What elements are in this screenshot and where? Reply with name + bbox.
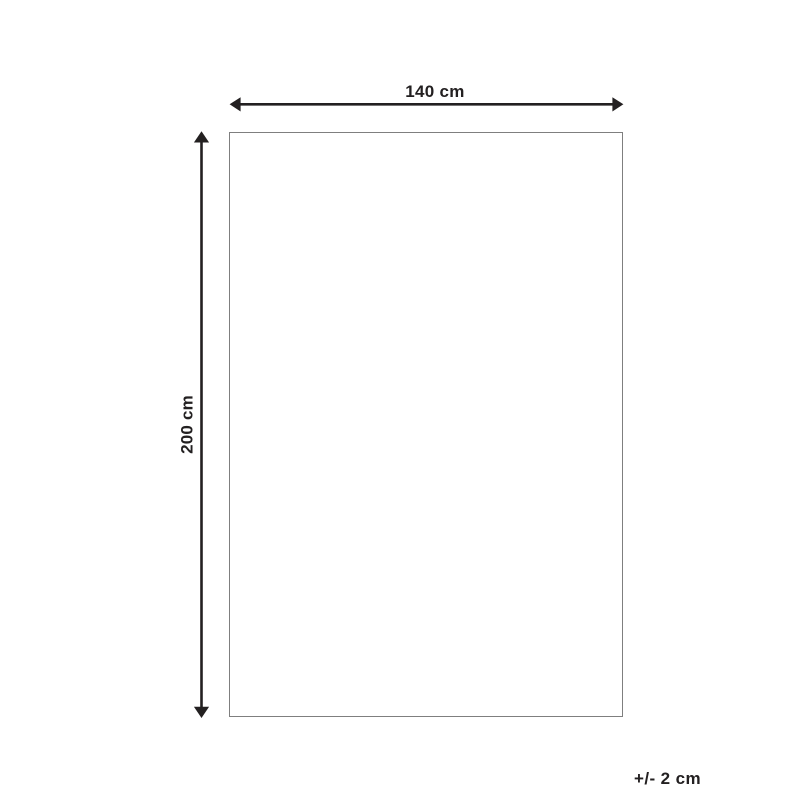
- svg-text:140 cm: 140 cm: [405, 82, 464, 101]
- svg-text:+/- 2 cm: +/- 2 cm: [634, 769, 701, 788]
- svg-text:200 cm: 200 cm: [178, 395, 197, 454]
